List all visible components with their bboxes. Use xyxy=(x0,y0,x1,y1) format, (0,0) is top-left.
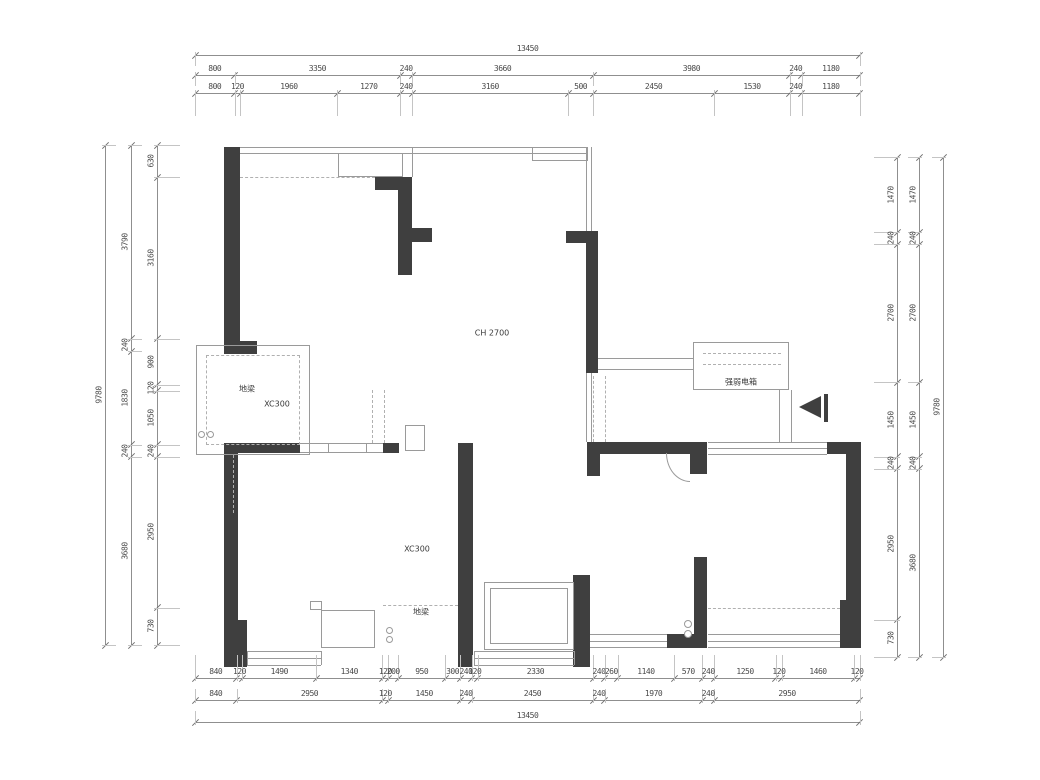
extension-line xyxy=(908,244,922,245)
wall-segment xyxy=(586,231,598,373)
fixture-box xyxy=(338,153,403,177)
plan-line xyxy=(598,358,693,359)
fitting-circle xyxy=(386,636,393,643)
plan-text-label: 地梁 xyxy=(239,385,255,394)
dimension-value: 1450 xyxy=(887,411,896,428)
dimension-value: 200 xyxy=(387,667,400,676)
plan-line xyxy=(474,665,574,666)
dimension-value: 240 xyxy=(459,689,472,698)
extension-line xyxy=(154,457,180,458)
dimension-value: 3680 xyxy=(121,542,130,559)
dimension-value: 2450 xyxy=(645,82,662,91)
extension-line xyxy=(154,339,180,340)
dimension-value: 240 xyxy=(592,667,605,676)
fitting-circle xyxy=(684,620,692,628)
dimension-value: 840 xyxy=(209,667,222,676)
dimension-value: 900 xyxy=(147,355,156,368)
dimension-value: 240 xyxy=(592,689,605,698)
extension-line xyxy=(154,145,180,146)
floor-plan: CH 2700地梁XC300XC300地梁强弱电箱134508003350240… xyxy=(0,0,1040,780)
dimension-value: 240 xyxy=(121,338,130,351)
dimension-value: 800 xyxy=(208,64,221,73)
plan-line xyxy=(474,658,574,659)
extension-line xyxy=(102,645,116,646)
dimension-value: 1180 xyxy=(822,64,839,73)
plan-text-label: XC300 xyxy=(264,400,290,409)
wall-segment xyxy=(690,442,707,474)
door-swing-arc xyxy=(666,453,690,482)
dimension-value: 240 xyxy=(400,82,413,91)
dimension-value: 1530 xyxy=(743,82,760,91)
plan-text-label: 强弱电箱 xyxy=(725,378,757,387)
plan-line xyxy=(247,658,321,659)
wall-segment xyxy=(224,147,240,354)
dimension-value: 260 xyxy=(605,667,618,676)
dimension-value: 120 xyxy=(231,82,244,91)
dimension-value: 800 xyxy=(208,82,221,91)
dimension-value: 9780 xyxy=(95,386,104,403)
extension-line xyxy=(128,645,142,646)
dashed-line xyxy=(240,177,375,178)
dimension-value: 3660 xyxy=(494,64,511,73)
dimension-value: 240 xyxy=(909,232,918,245)
plan-line xyxy=(247,651,321,652)
fixture-box xyxy=(405,425,425,451)
dashed-line xyxy=(383,605,458,606)
dimension-line xyxy=(105,145,106,645)
dimension-value: 240 xyxy=(887,456,896,469)
extension-line xyxy=(154,391,180,392)
dimension-value: 1490 xyxy=(271,667,288,676)
wall-segment xyxy=(846,442,861,602)
extension-line xyxy=(908,657,922,658)
dashed-line xyxy=(233,455,234,513)
plan-line xyxy=(586,373,587,442)
fixture-box xyxy=(310,601,322,610)
dimension-value: 240 xyxy=(887,232,896,245)
wall-segment xyxy=(458,443,473,667)
fitting-circle xyxy=(684,630,692,638)
plan-line xyxy=(708,647,840,648)
dimension-value: 1470 xyxy=(887,186,896,203)
extension-line xyxy=(235,90,236,116)
dimension-line xyxy=(131,145,132,645)
dimension-value: 240 xyxy=(400,64,413,73)
floor-plan-canvas: CH 2700地梁XC300XC300地梁强弱电箱134508003350240… xyxy=(0,0,1040,780)
dimension-value: 2950 xyxy=(147,524,156,541)
dimension-value: 1050 xyxy=(147,409,156,426)
extension-line xyxy=(337,90,338,116)
dimension-value: 1340 xyxy=(341,667,358,676)
extension-line xyxy=(874,157,900,158)
dimension-value: 2950 xyxy=(778,689,795,698)
extension-line xyxy=(128,145,142,146)
wall-segment xyxy=(398,177,412,275)
fitting-circle xyxy=(207,431,214,438)
extension-line xyxy=(195,655,196,681)
fitting-circle xyxy=(198,431,205,438)
dashed-line xyxy=(593,376,594,442)
dashed-line xyxy=(384,390,385,443)
dimension-value: 240 xyxy=(147,444,156,457)
extension-line xyxy=(932,657,946,658)
plan-line xyxy=(708,634,840,635)
plan-line xyxy=(247,665,321,666)
dimension-value: 1830 xyxy=(121,389,130,406)
extension-line xyxy=(195,90,196,116)
extension-line xyxy=(102,145,116,146)
extension-line xyxy=(237,689,238,703)
extension-line xyxy=(128,445,142,446)
plan-line xyxy=(590,647,667,648)
dimension-value: 240 xyxy=(121,444,130,457)
plan-line xyxy=(708,448,827,449)
extension-line xyxy=(568,90,569,116)
dimension-value: 3160 xyxy=(482,82,499,91)
extension-line xyxy=(195,689,196,703)
dashed-line xyxy=(372,390,373,443)
extension-line xyxy=(593,90,594,116)
extension-line xyxy=(932,157,946,158)
extension-line xyxy=(860,72,861,86)
wall-segment xyxy=(383,443,399,453)
extension-line xyxy=(860,689,861,703)
plan-line xyxy=(708,442,827,443)
plan-line xyxy=(474,651,574,652)
extension-line xyxy=(618,655,619,681)
dimension-value: 1250 xyxy=(736,667,753,676)
dimension-value: 300 xyxy=(446,667,459,676)
extension-line xyxy=(874,657,900,658)
dimension-value: 13450 xyxy=(517,711,539,720)
extension-line xyxy=(412,90,413,116)
plan-line xyxy=(591,147,592,231)
dimension-value: 1960 xyxy=(280,82,297,91)
plan-line xyxy=(590,641,667,642)
dimension-line xyxy=(195,722,860,723)
dimension-value: 2700 xyxy=(887,305,896,322)
dimension-value: 240 xyxy=(789,64,802,73)
dashed-line xyxy=(703,353,781,354)
dimension-value: 3680 xyxy=(909,554,918,571)
plan-line xyxy=(590,634,667,635)
entry-arrow-icon xyxy=(799,396,821,418)
extension-line xyxy=(128,457,142,458)
extension-line xyxy=(674,655,675,681)
dimension-value: 1180 xyxy=(822,82,839,91)
extension-line xyxy=(714,90,715,116)
extension-line xyxy=(154,645,180,646)
dimension-value: 1970 xyxy=(645,689,662,698)
dimension-line xyxy=(195,75,860,76)
dimension-value: 3350 xyxy=(309,64,326,73)
extension-line xyxy=(802,90,803,116)
dimension-value: 1470 xyxy=(909,186,918,203)
plan-line xyxy=(474,651,475,665)
dimension-value: 13450 xyxy=(517,44,539,53)
dashed-line xyxy=(708,608,840,609)
dimension-line xyxy=(195,93,860,94)
extension-line xyxy=(195,72,196,86)
dimension-value: 120 xyxy=(851,667,864,676)
dimension-value: 500 xyxy=(574,82,587,91)
dimension-value: 2700 xyxy=(909,305,918,322)
extension-line xyxy=(195,52,196,66)
dimension-value: 1460 xyxy=(809,667,826,676)
extension-line xyxy=(195,711,196,725)
dimension-value: 2330 xyxy=(527,667,544,676)
extension-line xyxy=(908,382,922,383)
wall-segment xyxy=(573,575,590,667)
fixture-box xyxy=(532,147,588,161)
dimension-line xyxy=(943,157,944,657)
fixture-box xyxy=(490,588,568,644)
extension-line xyxy=(240,90,241,116)
extension-line xyxy=(400,90,401,116)
dimension-value: 120 xyxy=(233,667,246,676)
dimension-line xyxy=(195,55,860,56)
dimension-value: 840 xyxy=(209,689,222,698)
dimension-value: 570 xyxy=(682,667,695,676)
dashed-line xyxy=(703,364,781,365)
wall-segment xyxy=(224,620,247,667)
dimension-value: 240 xyxy=(702,667,715,676)
extension-line xyxy=(316,655,317,681)
dimension-value: 3160 xyxy=(147,249,156,266)
plan-text-label: 地梁 xyxy=(413,608,429,617)
dimension-value: 3790 xyxy=(121,233,130,250)
plan-line xyxy=(708,641,840,642)
extension-line xyxy=(128,339,142,340)
dimension-value: 730 xyxy=(887,632,896,645)
extension-line xyxy=(860,90,861,116)
plan-line xyxy=(321,651,322,665)
extension-line xyxy=(874,620,900,621)
plan-line xyxy=(598,369,693,370)
dimension-line xyxy=(195,700,860,701)
dimension-value: 3980 xyxy=(683,64,700,73)
dashed-line xyxy=(605,376,606,442)
dimension-value: 950 xyxy=(415,667,428,676)
dimension-value: 120 xyxy=(468,667,481,676)
dimension-line xyxy=(195,678,860,679)
dimension-value: 240 xyxy=(789,82,802,91)
wall-segment xyxy=(694,557,707,648)
fixture-box xyxy=(321,610,375,648)
extension-line xyxy=(860,52,861,66)
plan-line xyxy=(574,651,575,665)
plan-line xyxy=(247,651,248,665)
extension-line xyxy=(154,177,180,178)
extension-line xyxy=(154,385,180,386)
dimension-value: 120 xyxy=(147,381,156,394)
fixture-box xyxy=(328,443,367,453)
dimension-value: 1140 xyxy=(637,667,654,676)
dimension-value: 1270 xyxy=(360,82,377,91)
extension-line xyxy=(790,90,791,116)
extension-line xyxy=(874,382,900,383)
wall-segment xyxy=(412,228,432,242)
fitting-circle xyxy=(386,627,393,634)
extension-line xyxy=(593,72,594,86)
dimension-value: 1450 xyxy=(909,411,918,428)
wall-segment xyxy=(587,454,600,476)
dimension-value: 120 xyxy=(772,667,785,676)
dimension-value: 240 xyxy=(702,689,715,698)
dimension-value: 630 xyxy=(147,155,156,168)
wall-segment xyxy=(840,600,861,648)
extension-line xyxy=(128,351,142,352)
dimension-value: 240 xyxy=(909,456,918,469)
wall-segment xyxy=(824,394,828,422)
dimension-value: 2950 xyxy=(301,689,318,698)
extension-line xyxy=(154,608,180,609)
plan-line xyxy=(791,390,792,442)
dimension-line xyxy=(157,145,158,645)
dimension-value: 2950 xyxy=(887,536,896,553)
plan-line xyxy=(591,373,592,442)
extension-line xyxy=(154,445,180,446)
dimension-value: 9780 xyxy=(933,398,942,415)
plan-text-label: XC300 xyxy=(404,545,430,554)
extension-line xyxy=(908,157,922,158)
dimension-value: 2450 xyxy=(524,689,541,698)
dimension-value: 730 xyxy=(147,620,156,633)
plan-text-label: CH 2700 xyxy=(475,329,510,338)
extension-line xyxy=(860,711,861,725)
dimension-value: 120 xyxy=(379,689,392,698)
plan-line xyxy=(708,454,827,455)
plan-line xyxy=(779,390,780,442)
dimension-value: 1450 xyxy=(416,689,433,698)
plan-line xyxy=(412,147,413,177)
extension-line xyxy=(874,244,900,245)
